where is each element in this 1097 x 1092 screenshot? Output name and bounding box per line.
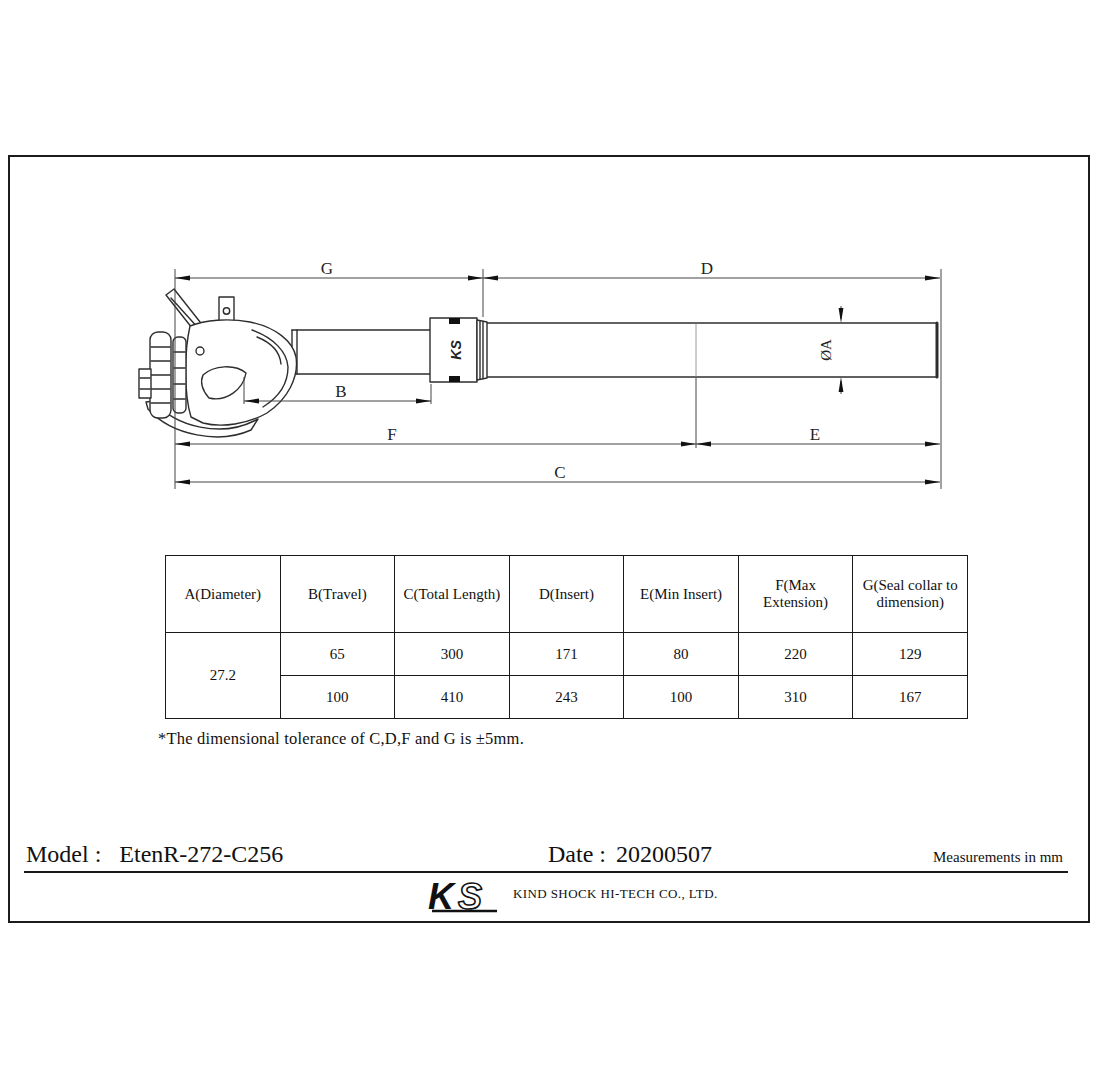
table-row: 27.2 65 300 171 80 220 129 <box>166 633 968 676</box>
col-header-c-total-length: C(Total Length) <box>395 556 510 633</box>
col-header-f-max-extension: F(Max Extension) <box>738 556 853 633</box>
cell-diameter: 27.2 <box>166 633 281 719</box>
cell-max-ext-1: 220 <box>738 633 853 676</box>
cell-min-insert-1: 80 <box>624 633 739 676</box>
cell-max-ext-2: 310 <box>738 676 853 719</box>
cell-travel-2: 100 <box>280 676 395 719</box>
cell-insert-1: 171 <box>509 633 624 676</box>
units-label: Measurements in mm <box>933 849 1063 866</box>
model-row: Model : EtenR-272-C256 <box>26 841 283 868</box>
spec-table-header: A(Diameter) B(Travel) C(Total Length) D(… <box>166 556 968 633</box>
cell-seal-1: 129 <box>853 633 968 676</box>
date-label: Date : <box>548 841 606 868</box>
col-header-a-diameter: A(Diameter) <box>166 556 281 633</box>
col-header-d-insert: D(Insert) <box>509 556 624 633</box>
model-value: EtenR-272-C256 <box>119 841 283 868</box>
date-row: Date : 20200507 <box>548 841 712 868</box>
company-name: KIND SHOCK HI-TECH CO., LTD. <box>513 886 718 902</box>
cell-seal-2: 167 <box>853 676 968 719</box>
tolerance-note: *The dimensional tolerance of C,D,F and … <box>158 729 524 749</box>
col-header-g-seal-collar: G(Seal collar to dimension) <box>853 556 968 633</box>
cell-min-insert-2: 100 <box>624 676 739 719</box>
cell-travel-1: 65 <box>280 633 395 676</box>
model-label: Model : <box>26 841 101 868</box>
col-header-e-min-insert: E(Min Insert) <box>624 556 739 633</box>
date-value: 20200507 <box>616 841 712 868</box>
drawing-sheet-frame <box>8 155 1090 923</box>
cell-length-1: 300 <box>395 633 510 676</box>
spec-table: A(Diameter) B(Travel) C(Total Length) D(… <box>165 555 968 719</box>
table-row: 100 410 243 100 310 167 <box>166 676 968 719</box>
cell-length-2: 410 <box>395 676 510 719</box>
col-header-b-travel: B(Travel) <box>280 556 395 633</box>
cell-insert-2: 243 <box>509 676 624 719</box>
footer-divider <box>24 871 1068 873</box>
